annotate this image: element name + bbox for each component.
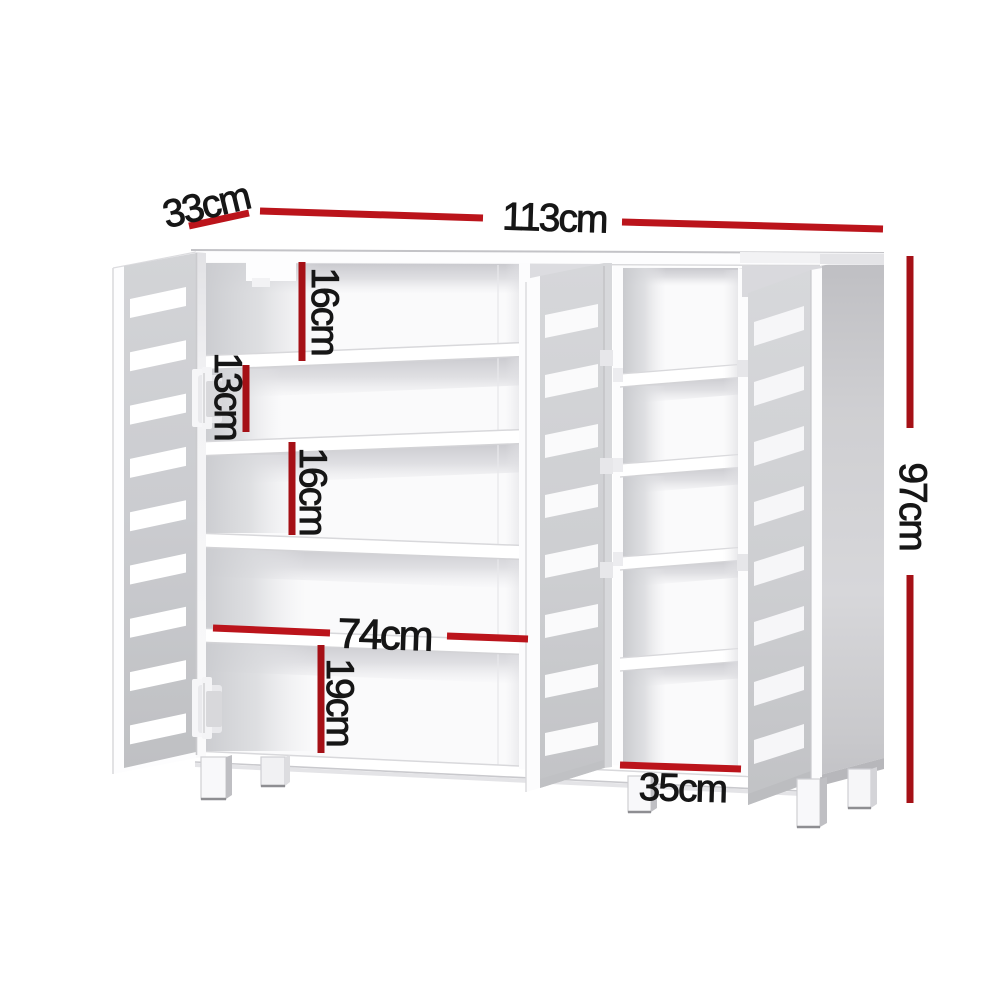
- svg-text:13cm: 13cm: [206, 352, 249, 439]
- svg-text:35cm: 35cm: [638, 766, 726, 811]
- svg-text:74cm: 74cm: [337, 609, 433, 659]
- svg-text:16cm: 16cm: [291, 447, 334, 534]
- svg-text:97cm: 97cm: [891, 462, 934, 549]
- svg-text:113cm: 113cm: [502, 195, 607, 241]
- svg-text:16cm: 16cm: [303, 267, 346, 354]
- svg-text:19cm: 19cm: [318, 658, 361, 745]
